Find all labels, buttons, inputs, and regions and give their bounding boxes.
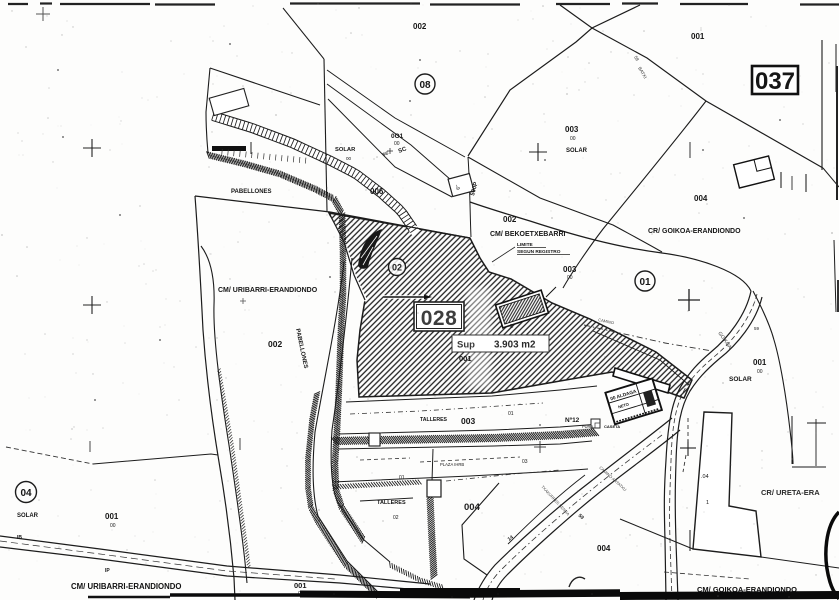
svg-text:001: 001 xyxy=(691,32,705,41)
svg-text:002: 002 xyxy=(413,22,427,31)
svg-text:002: 002 xyxy=(268,339,282,349)
svg-text:08: 08 xyxy=(419,80,431,91)
svg-text:004: 004 xyxy=(694,194,708,203)
svg-text:00: 00 xyxy=(570,136,576,142)
svg-text:003: 003 xyxy=(563,265,577,274)
svg-text:00: 00 xyxy=(346,156,352,161)
svg-text:TALLERES: TALLERES xyxy=(420,417,448,423)
svg-text:00: 00 xyxy=(757,369,763,375)
svg-text:001: 001 xyxy=(294,581,307,590)
svg-text:SOLAR: SOLAR xyxy=(729,376,752,383)
svg-text:PABELLONES: PABELLONES xyxy=(231,189,272,195)
svg-text:006: 006 xyxy=(370,187,384,196)
svg-text:CR/ URETA-ERA: CR/ URETA-ERA xyxy=(761,488,820,497)
svg-text:001: 001 xyxy=(753,358,767,367)
svg-text:028: 028 xyxy=(421,307,458,330)
svg-text:SOLAR: SOLAR xyxy=(335,147,356,153)
svg-text:002: 002 xyxy=(503,215,517,224)
svg-text:01: 01 xyxy=(399,475,405,481)
svg-text:04: 04 xyxy=(20,488,32,499)
svg-text:CR/ GOIKOA-ERANDIONDO: CR/ GOIKOA-ERANDIONDO xyxy=(648,228,741,235)
svg-text:3.903 m2: 3.903 m2 xyxy=(494,340,536,351)
svg-text:59: 59 xyxy=(754,326,760,331)
svg-text:00: 00 xyxy=(567,275,573,281)
svg-text:SOLAR: SOLAR xyxy=(17,513,39,519)
svg-text:SOLAR: SOLAR xyxy=(566,148,588,154)
svg-text:IB: IB xyxy=(17,535,22,541)
svg-text:004: 004 xyxy=(464,502,481,513)
svg-text:SEGUN REGISTRO: SEGUN REGISTRO xyxy=(517,249,561,255)
svg-text:.04: .04 xyxy=(701,474,709,480)
svg-text:001: 001 xyxy=(105,512,119,521)
svg-text:TALLERES: TALLERES xyxy=(377,500,406,506)
svg-text:PURB: PURB xyxy=(582,424,593,429)
svg-text:Sup: Sup xyxy=(457,340,475,351)
svg-text:001: 001 xyxy=(459,354,472,363)
svg-text:003: 003 xyxy=(461,416,475,426)
svg-text:037: 037 xyxy=(755,68,795,95)
svg-text:00: 00 xyxy=(110,523,116,529)
svg-text:LIMITE: LIMITE xyxy=(517,242,534,248)
svg-text:0O1: 0O1 xyxy=(391,133,404,140)
svg-text:IP: IP xyxy=(105,568,110,574)
svg-text:02: 02 xyxy=(393,515,399,521)
svg-text:004: 004 xyxy=(597,544,611,553)
svg-text:PLAZA IHRB: PLAZA IHRB xyxy=(440,462,464,467)
svg-text:CM/ URIBARRI-ERANDIONDO: CM/ URIBARRI-ERANDIONDO xyxy=(71,582,181,591)
svg-text:CM/ URIBARRI-ERANDIONDO: CM/ URIBARRI-ERANDIONDO xyxy=(218,287,318,294)
svg-text:CM/ BEKOETXEBARRI: CM/ BEKOETXEBARRI xyxy=(490,231,566,238)
svg-text:CASETA: CASETA xyxy=(604,424,620,429)
svg-text:01: 01 xyxy=(639,277,651,288)
svg-text:Nº12: Nº12 xyxy=(565,417,580,424)
svg-text:03: 03 xyxy=(522,459,528,465)
svg-text:02: 02 xyxy=(392,263,402,273)
svg-text:003: 003 xyxy=(565,125,579,134)
svg-text:1: 1 xyxy=(706,500,709,506)
